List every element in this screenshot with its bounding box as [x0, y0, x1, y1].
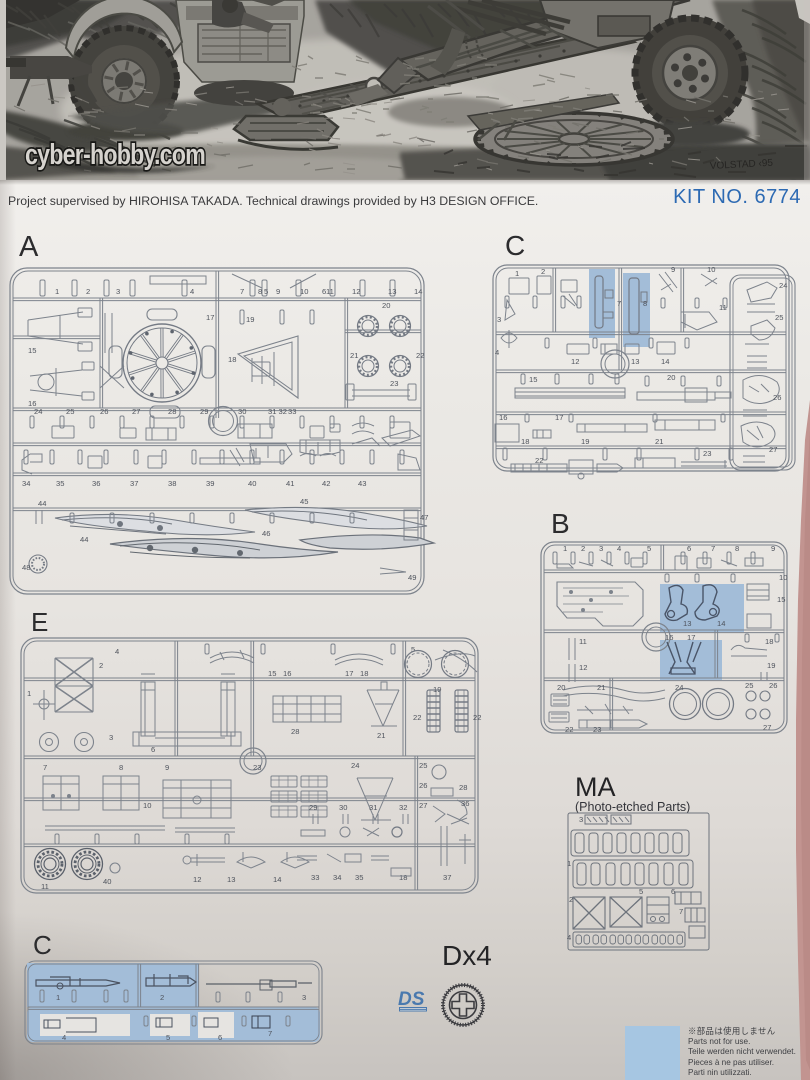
svg-text:17: 17	[555, 413, 563, 422]
svg-text:42: 42	[322, 479, 330, 488]
svg-text:24: 24	[675, 683, 683, 692]
svg-text:6: 6	[151, 745, 155, 754]
svg-text:1: 1	[567, 859, 571, 868]
svg-text:20: 20	[667, 373, 675, 382]
svg-text:24: 24	[351, 761, 359, 770]
svg-text:1: 1	[55, 287, 59, 296]
svg-text:33: 33	[288, 407, 296, 416]
svg-text:48: 48	[22, 563, 30, 572]
svg-text:13: 13	[683, 619, 691, 628]
svg-text:21: 21	[597, 683, 605, 692]
svg-text:4: 4	[62, 1033, 66, 1042]
svg-text:16: 16	[499, 413, 507, 422]
svg-text:35: 35	[355, 873, 363, 882]
svg-text:28: 28	[459, 783, 467, 792]
svg-text:21: 21	[655, 437, 663, 446]
svg-text:1: 1	[515, 269, 519, 278]
svg-text:25: 25	[419, 761, 427, 770]
svg-text:1: 1	[56, 993, 60, 1002]
svg-text:14: 14	[661, 357, 669, 366]
svg-text:21: 21	[350, 351, 358, 360]
svg-text:5: 5	[264, 287, 268, 296]
svg-text:18: 18	[765, 637, 773, 646]
svg-text:23: 23	[593, 725, 601, 734]
svg-text:16: 16	[665, 633, 673, 642]
svg-text:17: 17	[206, 313, 214, 322]
svg-text:36: 36	[461, 799, 469, 808]
svg-text:11: 11	[579, 637, 587, 646]
svg-text:44: 44	[38, 499, 46, 508]
svg-text:25: 25	[775, 313, 783, 322]
svg-text:13: 13	[388, 287, 396, 296]
svg-text:34: 34	[22, 479, 30, 488]
svg-text:7: 7	[43, 763, 47, 772]
svg-text:8: 8	[643, 299, 647, 308]
svg-text:6: 6	[687, 544, 691, 553]
svg-text:15: 15	[28, 346, 36, 355]
svg-text:2: 2	[160, 993, 164, 1002]
svg-text:3: 3	[302, 993, 306, 1002]
svg-text:22: 22	[416, 351, 424, 360]
svg-text:24: 24	[34, 407, 42, 416]
svg-text:25: 25	[66, 407, 74, 416]
svg-text:37: 37	[443, 873, 451, 882]
svg-text:7: 7	[240, 287, 244, 296]
svg-text:8: 8	[119, 763, 123, 772]
svg-text:40: 40	[248, 479, 256, 488]
svg-text:9: 9	[165, 763, 169, 772]
svg-text:15: 15	[268, 669, 276, 678]
svg-text:39: 39	[206, 479, 214, 488]
svg-text:27: 27	[769, 445, 777, 454]
svg-text:7: 7	[679, 907, 683, 916]
svg-text:3: 3	[109, 733, 113, 742]
svg-text:49: 49	[408, 573, 416, 582]
svg-text:5: 5	[166, 1033, 170, 1042]
svg-text:7: 7	[711, 544, 715, 553]
svg-text:21: 21	[377, 731, 385, 740]
svg-text:26: 26	[419, 781, 427, 790]
svg-text:12: 12	[579, 663, 587, 672]
svg-text:7: 7	[268, 1029, 272, 1038]
svg-text:13: 13	[631, 357, 639, 366]
svg-text:40: 40	[103, 877, 111, 886]
svg-text:10: 10	[143, 801, 151, 810]
svg-text:2: 2	[581, 544, 585, 553]
svg-text:15: 15	[529, 375, 537, 384]
svg-text:41: 41	[286, 479, 294, 488]
svg-text:32: 32	[399, 803, 407, 812]
svg-text:35: 35	[56, 479, 64, 488]
svg-text:11: 11	[326, 287, 334, 296]
svg-text:17: 17	[345, 669, 353, 678]
svg-text:25: 25	[745, 681, 753, 690]
svg-text:18: 18	[521, 437, 529, 446]
svg-text:27: 27	[132, 407, 140, 416]
svg-text:3: 3	[116, 287, 120, 296]
svg-text:7: 7	[617, 299, 621, 308]
svg-text:20: 20	[557, 683, 565, 692]
svg-text:18: 18	[360, 669, 368, 678]
svg-text:14: 14	[717, 619, 725, 628]
svg-text:3: 3	[579, 815, 583, 824]
svg-text:9: 9	[671, 265, 675, 274]
svg-text:4: 4	[115, 647, 119, 656]
svg-text:27: 27	[763, 723, 771, 732]
svg-text:DS: DS	[398, 989, 425, 1010]
svg-text:16: 16	[283, 669, 291, 678]
svg-text:2: 2	[541, 267, 545, 276]
svg-text:28: 28	[168, 407, 176, 416]
svg-text:19: 19	[767, 661, 775, 670]
svg-text:26: 26	[100, 407, 108, 416]
svg-text:18: 18	[228, 355, 236, 364]
svg-text:22: 22	[565, 725, 573, 734]
svg-text:19: 19	[581, 437, 589, 446]
svg-text:30: 30	[238, 407, 246, 416]
svg-text:15: 15	[777, 595, 785, 604]
svg-text:5: 5	[639, 887, 643, 896]
svg-text:8: 8	[258, 287, 262, 296]
svg-text:9: 9	[771, 544, 775, 553]
svg-text:38: 38	[168, 479, 176, 488]
svg-text:26: 26	[769, 681, 777, 690]
svg-text:12: 12	[571, 357, 579, 366]
svg-text:10: 10	[300, 287, 308, 296]
svg-text:20: 20	[382, 301, 390, 310]
svg-text:6: 6	[218, 1033, 222, 1042]
svg-text:33: 33	[311, 873, 319, 882]
svg-text:46: 46	[262, 529, 270, 538]
svg-text:29: 29	[200, 407, 208, 416]
svg-text:10: 10	[707, 265, 715, 274]
svg-text:12: 12	[352, 287, 360, 296]
svg-text:3: 3	[497, 315, 501, 324]
svg-text:36: 36	[92, 479, 100, 488]
svg-text:43: 43	[358, 479, 366, 488]
svg-text:13: 13	[227, 875, 235, 884]
svg-text:14: 14	[414, 287, 422, 296]
svg-text:34: 34	[333, 873, 341, 882]
svg-text:18: 18	[399, 873, 407, 882]
svg-text:23: 23	[703, 449, 711, 458]
svg-text:30: 30	[339, 803, 347, 812]
svg-text:1: 1	[563, 544, 567, 553]
svg-text:9: 9	[276, 287, 280, 296]
svg-text:37: 37	[130, 479, 138, 488]
svg-text:24: 24	[779, 281, 787, 290]
svg-text:8: 8	[735, 544, 739, 553]
svg-text:1: 1	[27, 689, 31, 698]
svg-text:19: 19	[246, 315, 254, 324]
svg-text:31 32: 31 32	[268, 407, 287, 416]
svg-text:26: 26	[773, 393, 781, 402]
svg-text:22: 22	[473, 713, 481, 722]
svg-text:4: 4	[617, 544, 621, 553]
svg-text:2: 2	[86, 287, 90, 296]
svg-text:22: 22	[413, 713, 421, 722]
svg-text:45: 45	[300, 497, 308, 506]
svg-text:5: 5	[647, 544, 651, 553]
svg-text:31: 31	[369, 803, 377, 812]
svg-text:2: 2	[99, 661, 103, 670]
svg-text:3: 3	[599, 544, 603, 553]
svg-text:cyber-hobby.com: cyber-hobby.com	[25, 139, 205, 171]
svg-text:12: 12	[193, 875, 201, 884]
svg-text:47: 47	[420, 513, 428, 522]
svg-text:14: 14	[273, 875, 281, 884]
svg-text:4: 4	[495, 348, 499, 357]
svg-text:10: 10	[779, 573, 787, 582]
svg-text:44: 44	[80, 535, 88, 544]
svg-text:17: 17	[687, 633, 695, 642]
svg-text:23: 23	[390, 379, 398, 388]
svg-text:27: 27	[419, 801, 427, 810]
svg-text:28: 28	[291, 727, 299, 736]
svg-text:23: 23	[253, 763, 261, 772]
svg-text:11: 11	[41, 882, 49, 891]
svg-text:4: 4	[567, 933, 571, 942]
svg-text:4: 4	[190, 287, 194, 296]
svg-text:29: 29	[309, 803, 317, 812]
